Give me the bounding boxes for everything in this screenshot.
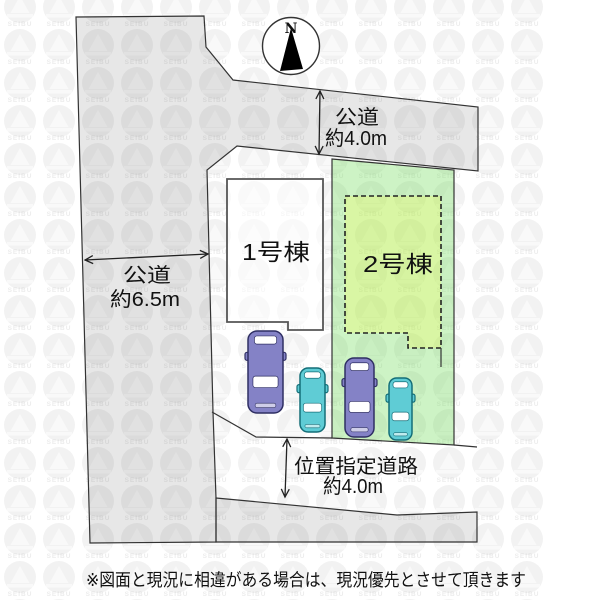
watermark-logo-text: SEIBU	[203, 591, 228, 598]
watermark-logo-text: SEIBU	[281, 363, 306, 370]
watermark-logo-text: SEIBU	[476, 249, 501, 256]
watermark-logo-text: SEIBU	[242, 59, 267, 66]
watermark-logo-text: SEIBU	[320, 553, 345, 560]
watermark-logo-text: SEIBU	[515, 591, 540, 598]
watermark-logo-text: SEIBU	[47, 173, 72, 180]
watermark-logo-text: SEIBU	[47, 97, 72, 104]
watermark-logo-text: SEIBU	[47, 477, 72, 484]
watermark-logo-text: SEIBU	[8, 135, 33, 142]
site-plan: SEIBUSEIBUSEIBUSEIBUSEIBUSEIBUSEIBUSEIBU…	[0, 0, 600, 600]
watermark-logo-text: SEIBU	[515, 401, 540, 408]
watermark-logo-text: SEIBU	[515, 211, 540, 218]
watermark-logo-text: SEIBU	[125, 591, 150, 598]
watermark-logo-text: SEIBU	[47, 287, 72, 294]
watermark-logo-text: SEIBU	[476, 477, 501, 484]
watermark-logo-text: SEIBU	[164, 591, 189, 598]
watermark-logo-text: SEIBU	[398, 591, 423, 598]
watermark-logo-text: SEIBU	[515, 553, 540, 560]
watermark-logo-text: SEIBU	[8, 173, 33, 180]
watermark-logo-text: SEIBU	[86, 591, 111, 598]
watermark-logo-text: SEIBU	[8, 249, 33, 256]
watermark-logo-text: SEIBU	[515, 287, 540, 294]
watermark-logo-text: SEIBU	[8, 515, 33, 522]
compass: N	[263, 18, 320, 75]
watermark-logo-text: SEIBU	[515, 135, 540, 142]
watermark-logo-text: SEIBU	[47, 211, 72, 218]
watermark-logo-text: SEIBU	[281, 591, 306, 598]
watermark-logo-text: SEIBU	[8, 439, 33, 446]
watermark-logo-text: SEIBU	[320, 21, 345, 28]
watermark-logo-text: SEIBU	[437, 59, 462, 66]
watermark-logo-text: SEIBU	[47, 591, 72, 598]
watermark-logo-text: SEIBU	[515, 363, 540, 370]
watermark-logo-text: SEIBU	[398, 59, 423, 66]
watermark-logo-text: SEIBU	[8, 553, 33, 560]
car-compact-lot1	[297, 368, 328, 432]
watermark-logo-text: SEIBU	[476, 211, 501, 218]
watermark-logo-text: SEIBU	[437, 553, 462, 560]
watermark-logo-text: SEIBU	[281, 439, 306, 446]
strip-top-boundary	[454, 445, 477, 447]
watermark-logo-text: SEIBU	[320, 59, 345, 66]
watermark-logo-text: SEIBU	[8, 325, 33, 332]
watermark-logo-text: SEIBU	[515, 249, 540, 256]
watermark-logo-text: SEIBU	[515, 173, 540, 180]
road-bottom-label: 位置指定道路	[294, 455, 418, 478]
watermark-logo-text: SEIBU	[359, 21, 384, 28]
watermark-logo-text: SEIBU	[242, 21, 267, 28]
watermark-logo-text: SEIBU	[476, 21, 501, 28]
watermark-logo-text: SEIBU	[86, 553, 111, 560]
watermark-logo-text: SEIBU	[476, 553, 501, 560]
watermark-logo-text: SEIBU	[8, 211, 33, 218]
watermark-logo-text: SEIBU	[242, 553, 267, 560]
watermark-logo-text: SEIBU	[476, 363, 501, 370]
watermark-logo-text: SEIBU	[8, 477, 33, 484]
watermark-logo-text: SEIBU	[515, 477, 540, 484]
road-left-dimension: 約6.5m	[110, 288, 180, 311]
road-top-label: 公道	[335, 106, 379, 129]
watermark-logo-text: SEIBU	[47, 439, 72, 446]
watermark-logo-text: SEIBU	[242, 591, 267, 598]
watermark-logo-text: SEIBU	[398, 553, 423, 560]
watermark-logo-text: SEIBU	[320, 591, 345, 598]
watermark-logo-text: SEIBU	[437, 477, 462, 484]
watermark-logo-text: SEIBU	[476, 173, 501, 180]
watermark-logo-text: SEIBU	[47, 59, 72, 66]
watermark-logo-text: SEIBU	[164, 553, 189, 560]
watermark-logo-text: SEIBU	[47, 249, 72, 256]
lot1-label: 1号棟	[242, 239, 310, 265]
watermark-logo-text: SEIBU	[515, 439, 540, 446]
watermark-logo-text: SEIBU	[47, 553, 72, 560]
watermark-logo-text: SEIBU	[281, 477, 306, 484]
watermark-logo-text: SEIBU	[476, 439, 501, 446]
watermark-logo-text: SEIBU	[47, 325, 72, 332]
watermark-logo-text: SEIBU	[47, 401, 72, 408]
watermark-logo-text: SEIBU	[476, 591, 501, 598]
watermark-logo-text: SEIBU	[476, 515, 501, 522]
car-sedan-lot1	[245, 331, 286, 413]
watermark-logo-text: SEIBU	[398, 477, 423, 484]
watermark-logo-text: SEIBU	[125, 553, 150, 560]
disclaimer-text: ※図面と現況に相違がある場合は、現況優先とさせて頂きます	[86, 570, 526, 590]
car-compact-lot2	[386, 378, 415, 440]
watermark-logo-text: SEIBU	[359, 553, 384, 560]
watermark-logo-text: SEIBU	[476, 401, 501, 408]
watermark-logo-text: SEIBU	[8, 363, 33, 370]
watermark-logo-text: SEIBU	[242, 439, 267, 446]
watermark-logo-text: SEIBU	[515, 515, 540, 522]
watermark-logo-text: SEIBU	[47, 363, 72, 370]
watermark-logo-text: SEIBU	[515, 21, 540, 28]
watermark-logo-text: SEIBU	[8, 401, 33, 408]
watermark-logo-text: SEIBU	[398, 21, 423, 28]
watermark-logo-text: SEIBU	[476, 287, 501, 294]
watermark-logo-text: SEIBU	[437, 591, 462, 598]
watermark-logo-text: SEIBU	[359, 59, 384, 66]
watermark-logo-text: SEIBU	[476, 59, 501, 66]
watermark-logo-text: SEIBU	[8, 59, 33, 66]
watermark-logo-text: SEIBU	[437, 21, 462, 28]
watermark-logo-text: SEIBU	[47, 515, 72, 522]
watermark-logo-text: SEIBU	[476, 135, 501, 142]
watermark-logo-text: SEIBU	[476, 97, 501, 104]
watermark-logo-text: SEIBU	[515, 59, 540, 66]
watermark-logo-text: SEIBU	[320, 439, 345, 446]
lot2-label: 2号棟	[363, 251, 433, 277]
watermark-logo-text: SEIBU	[203, 553, 228, 560]
road-left-label: 公道	[123, 264, 171, 287]
watermark-logo-text: SEIBU	[242, 477, 267, 484]
watermark-logo-text: SEIBU	[47, 21, 72, 28]
watermark-logo-text: SEIBU	[8, 21, 33, 28]
watermark-logo-text: SEIBU	[281, 553, 306, 560]
watermark-logo-text: SEIBU	[515, 97, 540, 104]
watermark-logo-text: SEIBU	[47, 135, 72, 142]
watermark-logo-text: SEIBU	[476, 325, 501, 332]
car-sedan-lot2	[342, 358, 377, 437]
road-bottom-dimension: 約4.0m	[323, 475, 383, 498]
watermark-logo-text: SEIBU	[8, 97, 33, 104]
watermark-logo-text: SEIBU	[515, 325, 540, 332]
watermark-logo-text: SEIBU	[8, 287, 33, 294]
road-top-dimension: 約4.0m	[325, 127, 387, 150]
watermark-logo-text: SEIBU	[8, 591, 33, 598]
watermark-logo-text: SEIBU	[203, 21, 228, 28]
watermark-logo-text: SEIBU	[359, 591, 384, 598]
